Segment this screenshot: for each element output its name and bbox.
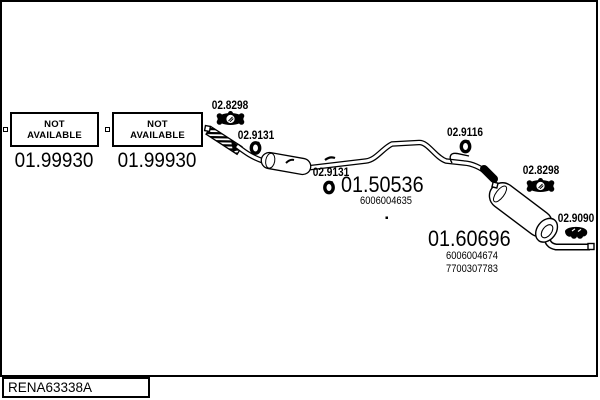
drawing-code: RENA63338A bbox=[8, 380, 92, 395]
box-connector-square bbox=[3, 127, 8, 132]
clamp-icon bbox=[527, 178, 555, 192]
speck bbox=[386, 217, 389, 220]
exhaust-diagram bbox=[0, 0, 600, 400]
tailpipe-end-square bbox=[588, 244, 594, 250]
code-clamp-rear[interactable]: 02.8298 bbox=[515, 165, 568, 177]
not-available-text: NOT AVAILABLE bbox=[27, 119, 82, 141]
oring-icon bbox=[251, 142, 259, 154]
code-ring-mid[interactable]: 02.9131 bbox=[305, 167, 358, 179]
oring-icon bbox=[461, 140, 469, 152]
part-ref-front-pipe-2[interactable]: 01.99930 bbox=[116, 150, 199, 172]
oem-number-rear-silencer-1: 6006004674 bbox=[446, 251, 498, 263]
part-ref-front-pipe[interactable]: 01.99930 bbox=[13, 150, 96, 172]
code-ring-rear[interactable]: 02.9116 bbox=[439, 127, 492, 139]
front-joint-square bbox=[205, 126, 211, 132]
parts-diagram-page: NOT AVAILABLE NOT AVAILABLE 01.99930 01.… bbox=[0, 0, 600, 400]
rear-mount-square bbox=[492, 182, 498, 188]
oem-number-mid-silencer: 6006004635 bbox=[360, 196, 412, 208]
part-ref-rear-silencer[interactable]: 01.60696 bbox=[428, 227, 511, 250]
pipe-weld-tick bbox=[325, 157, 335, 160]
not-available-box-1[interactable]: NOT AVAILABLE bbox=[10, 112, 99, 147]
clamp-icon bbox=[217, 111, 245, 125]
hanger-icon bbox=[565, 227, 587, 239]
drawing-code-box: RENA63338A bbox=[2, 377, 150, 398]
rear-joint-sleeve bbox=[484, 169, 494, 179]
not-available-box-2[interactable]: NOT AVAILABLE bbox=[112, 112, 203, 147]
not-available-text: NOT AVAILABLE bbox=[130, 119, 185, 141]
code-clamp-front[interactable]: 02.8298 bbox=[204, 100, 257, 112]
oring-icon bbox=[325, 181, 333, 193]
code-hanger-rear[interactable]: 02.9090 bbox=[550, 213, 600, 225]
box-connector-square bbox=[105, 127, 110, 132]
oem-number-rear-silencer-2: 7700307783 bbox=[446, 264, 498, 276]
code-ring-front[interactable]: 02.9131 bbox=[230, 130, 283, 142]
